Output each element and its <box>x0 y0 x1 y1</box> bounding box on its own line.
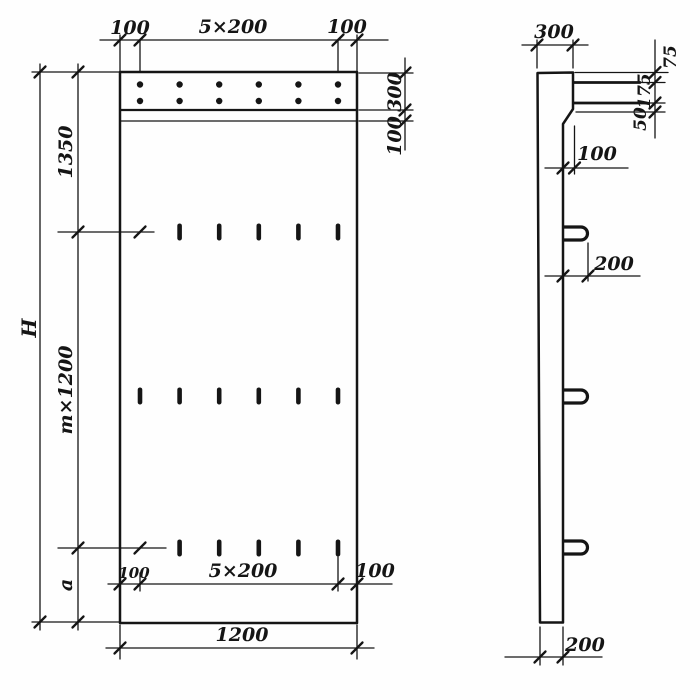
dim-label-top-center: 5×200 <box>199 16 268 38</box>
dim-label-m-1200: m×1200 <box>55 346 77 435</box>
dim-label-top-left: 100 <box>110 17 150 39</box>
dim-label-strip-100: 100 <box>384 116 406 156</box>
dim-label-edge-75: 75 <box>661 45 681 69</box>
dim-label-1350: 1350 <box>55 126 77 179</box>
dim-label-inner-bottom-left: 100 <box>118 564 150 582</box>
dim-label-thickness-200: 200 <box>564 634 605 656</box>
lifting-loop-2 <box>564 390 588 403</box>
dim-label-width-1200: 1200 <box>216 624 269 646</box>
side-dimension-lines <box>505 40 668 666</box>
dim-label-overall-height: H <box>17 317 41 338</box>
dim-label-edge-50: 50 <box>631 107 651 131</box>
technical-drawing: 100 5×200 100 H 1350 m×1200 a 300 100 10… <box>0 0 700 700</box>
dim-label-top-right: 100 <box>327 16 367 38</box>
drawing-sheet: 100 5×200 100 H 1350 m×1200 a 300 100 10… <box>0 0 700 700</box>
panel-front-view <box>120 72 357 623</box>
panel-face-outline <box>120 72 357 623</box>
lifting-loop-1 <box>564 227 588 240</box>
dim-label-step-100: 100 <box>577 143 617 165</box>
dim-label-inner-bottom-right: 100 <box>355 560 395 582</box>
dim-label-loop-200: 200 <box>593 253 634 275</box>
dim-label-side-top-300: 300 <box>534 21 574 43</box>
dim-label-band-300: 300 <box>384 72 406 112</box>
dim-label-a: a <box>55 579 77 591</box>
dim-label-inner-bottom-center: 5×200 <box>209 560 278 582</box>
dim-label-edge-175: 175 <box>635 73 655 109</box>
lifting-loop-3 <box>564 541 588 554</box>
